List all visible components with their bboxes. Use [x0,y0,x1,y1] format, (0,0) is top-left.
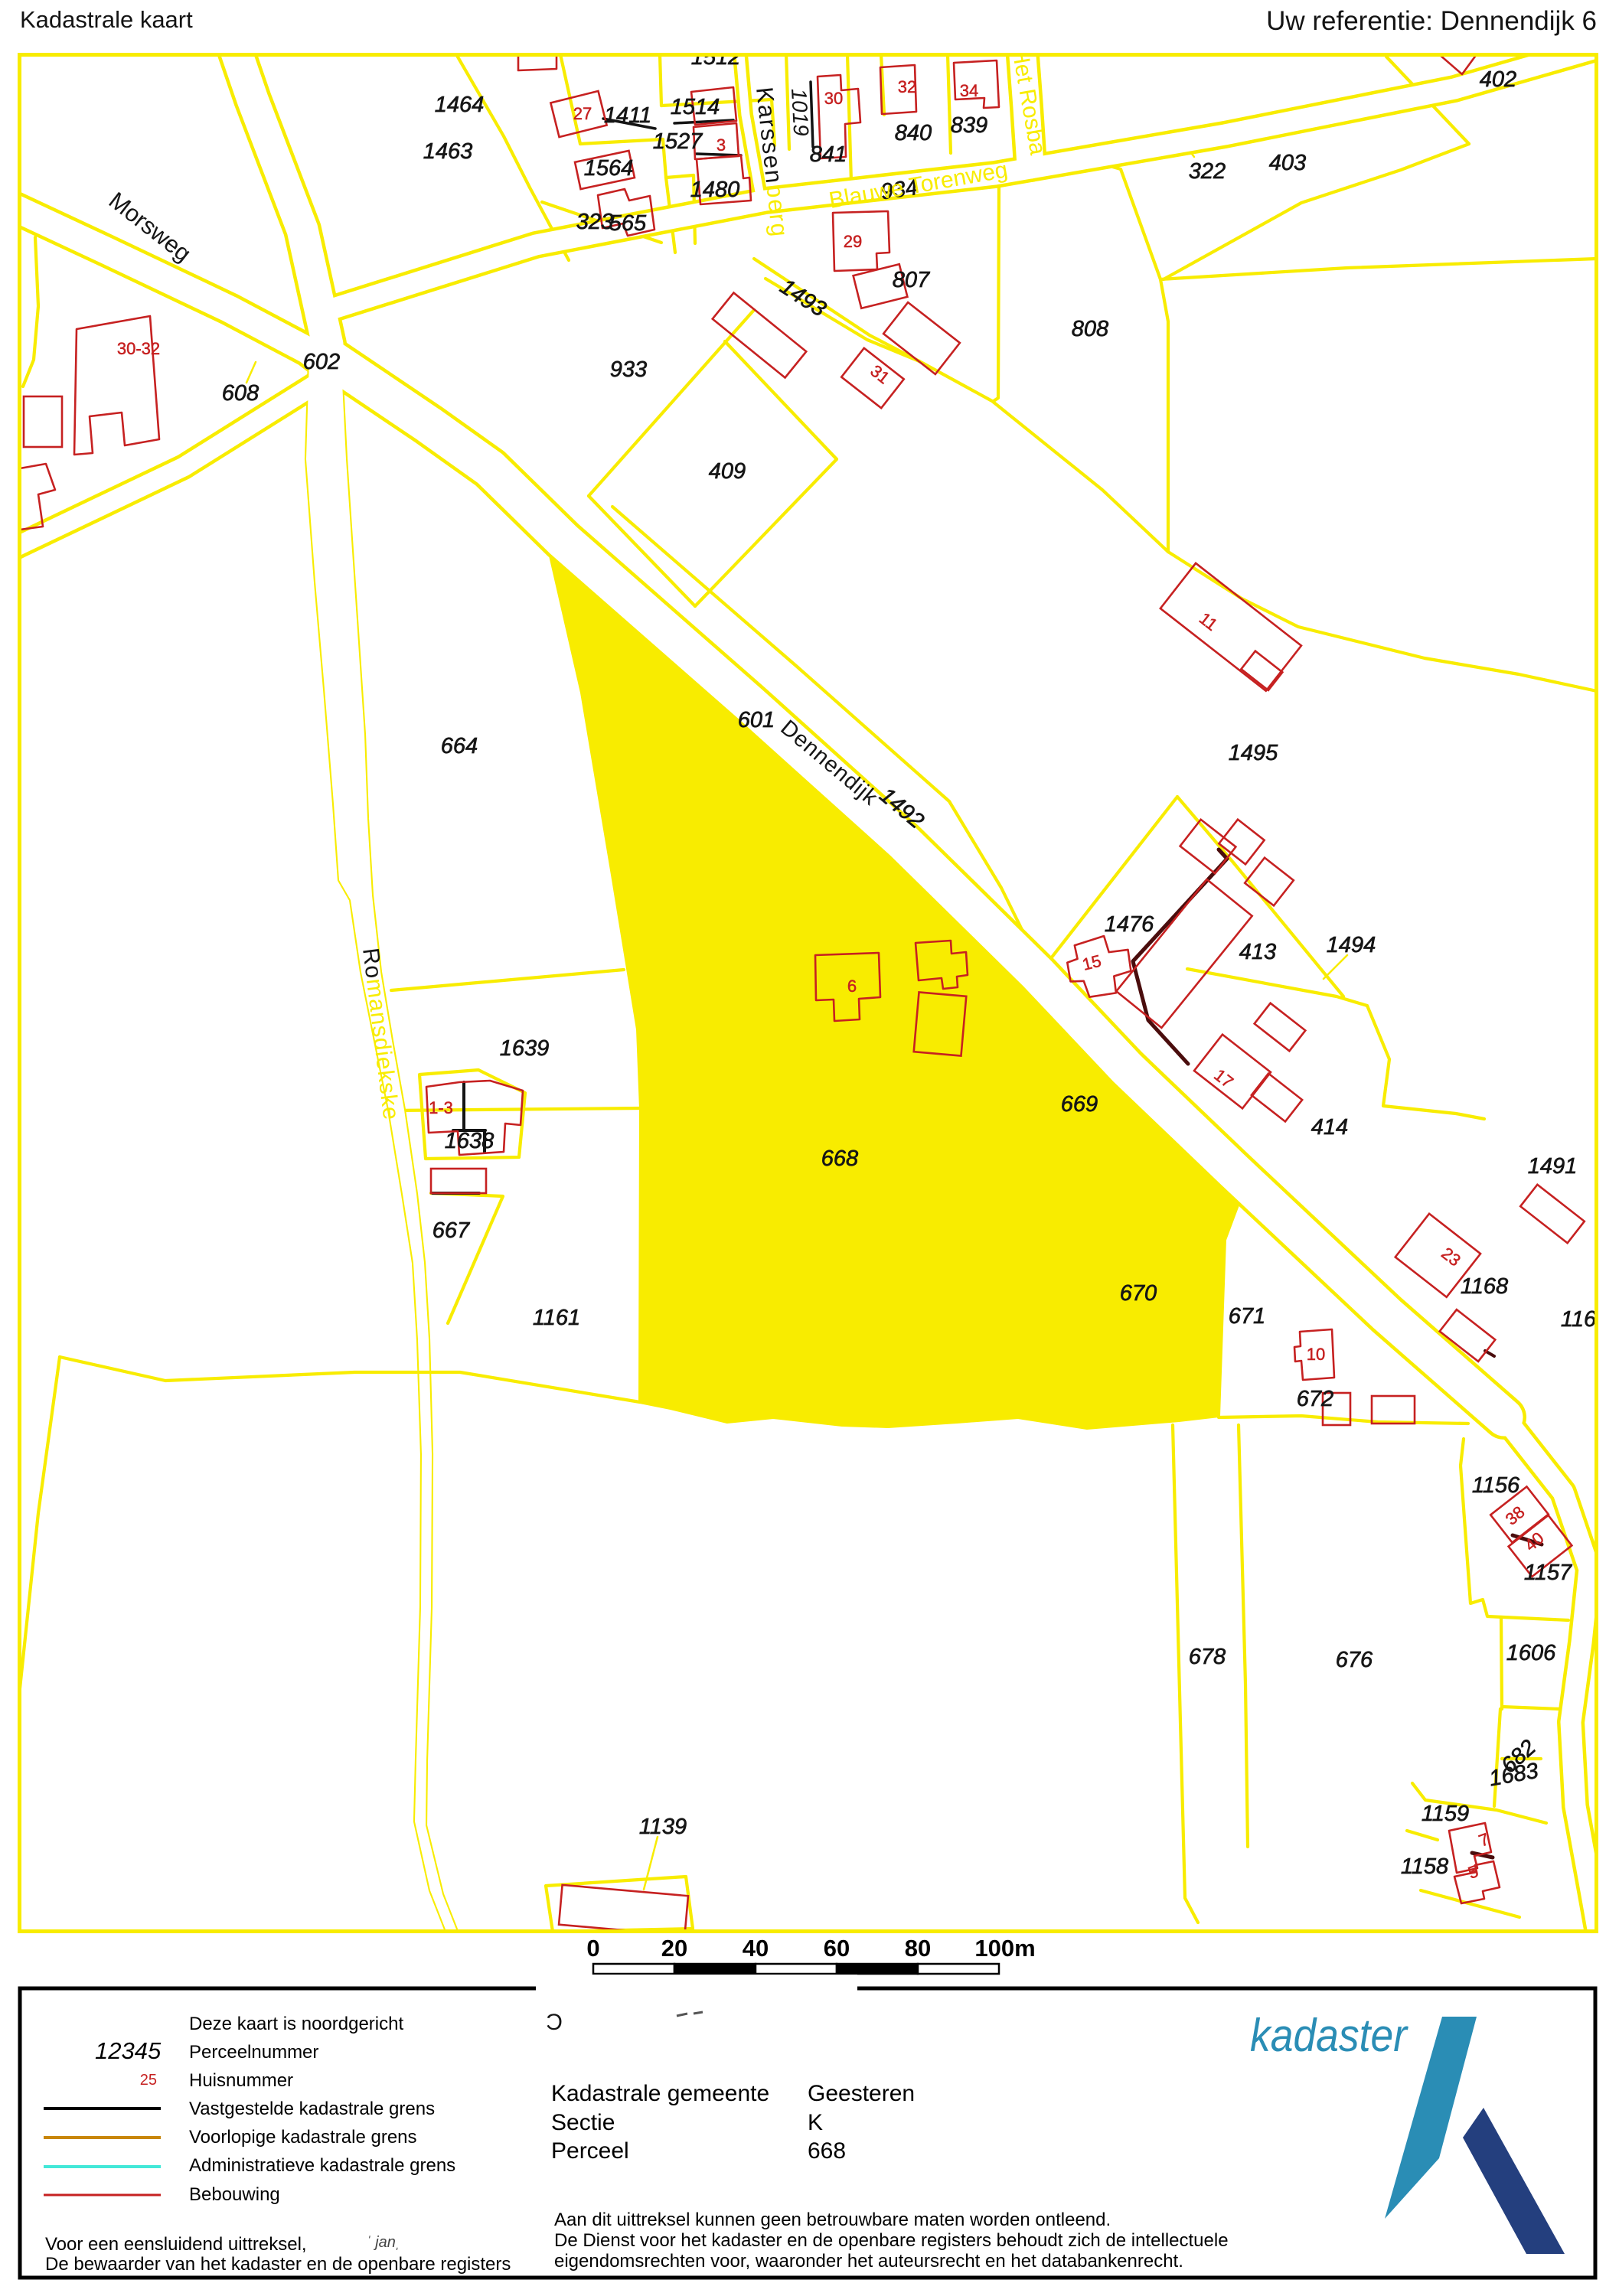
svg-text:1157: 1157 [1524,1561,1573,1585]
svg-text:839: 839 [951,113,987,138]
svg-text:933: 933 [610,357,647,382]
svg-text:841: 841 [810,142,847,167]
svg-text:34: 34 [960,81,978,100]
svg-text:32: 32 [898,77,916,96]
svg-text:668: 668 [821,1146,858,1171]
svg-text:12345: 12345 [95,2037,162,2064]
svg-text:eigendomsrechten voor, waarond: eigendomsrechten voor, waaronder het aut… [554,2251,1183,2272]
svg-text:602: 602 [303,350,340,374]
svg-text:1564: 1564 [584,156,634,181]
svg-text:1476: 1476 [1105,912,1154,937]
svg-text:0: 0 [586,1935,599,1962]
svg-text:1161: 1161 [533,1306,580,1330]
svg-text:Perceelnummer: Perceelnummer [189,2042,318,2063]
svg-text:840: 840 [895,121,932,145]
svg-text:Aan dit uittreksel kunnen geen: Aan dit uittreksel kunnen geen betrouwba… [554,2210,1111,2230]
svg-text:608: 608 [222,381,259,406]
svg-text:409: 409 [709,459,746,484]
svg-text:60: 60 [824,1935,850,1962]
svg-text:K: K [808,2110,823,2135]
svg-text:1156: 1156 [1472,1473,1520,1498]
svg-text:1158: 1158 [1401,1854,1448,1879]
svg-text:27: 27 [573,104,592,123]
svg-text:672: 672 [1297,1387,1333,1411]
svg-text:1514: 1514 [671,95,720,119]
svg-text:1638: 1638 [445,1129,495,1153]
svg-text:40: 40 [743,1935,769,1962]
svg-text:Voor een eensluidend uittrekse: Voor een eensluidend uittreksel, [45,2234,307,2255]
svg-text:1491: 1491 [1528,1154,1578,1179]
svg-text:Administratieve kadastrale gre: Administratieve kadastrale grens [189,2155,455,2176]
svg-text:1606: 1606 [1506,1641,1556,1665]
svg-text:1019: 1019 [787,88,813,137]
svg-text:1139: 1139 [639,1815,687,1839]
svg-text:1159: 1159 [1422,1802,1469,1826]
svg-text:678: 678 [1189,1645,1226,1669]
svg-text:1-3: 1-3 [429,1098,453,1117]
svg-text:601: 601 [738,708,775,732]
svg-text:403: 403 [1269,151,1306,175]
svg-text:323: 323 [576,210,613,234]
svg-text:100m: 100m [974,1935,1035,1962]
svg-text:3: 3 [716,135,726,155]
svg-text:669: 669 [1061,1092,1098,1117]
svg-text:Kadastrale gemeente: Kadastrale gemeente [551,2081,769,2106]
svg-text:1168: 1168 [1461,1274,1508,1299]
svg-text:Voorlopige kadastrale grens: Voorlopige kadastrale grens [189,2127,417,2148]
svg-text:413: 413 [1239,940,1276,964]
svg-text:667: 667 [432,1218,471,1243]
svg-text:25: 25 [140,2072,157,2089]
svg-text:Sectie: Sectie [551,2110,615,2135]
svg-text:Huisnummer: Huisnummer [189,2070,293,2091]
svg-text:1464: 1464 [435,93,485,117]
svg-text:671: 671 [1229,1304,1265,1329]
svg-text:Perceel: Perceel [551,2138,629,2164]
svg-text:414: 414 [1311,1115,1348,1140]
svg-text:De Dienst voor het kadaster en: De Dienst voor het kadaster en de openba… [554,2230,1229,2251]
svg-text:kadaster: kadaster [1250,2010,1408,2061]
svg-text:1527: 1527 [653,129,703,154]
svg-text:402: 402 [1480,67,1516,92]
svg-text:116: 116 [1561,1307,1597,1332]
svg-text:30-32: 30-32 [117,339,160,358]
svg-text:1411: 1411 [604,103,651,128]
svg-text:80: 80 [905,1935,931,1962]
svg-text:1639: 1639 [500,1036,550,1061]
svg-text:Bebouwing: Bebouwing [189,2184,280,2205]
svg-text:30: 30 [824,89,843,108]
svg-text:6: 6 [847,977,857,996]
svg-text:Vastgestelde kadastrale grens: Vastgestelde kadastrale grens [189,2099,435,2119]
svg-text:565: 565 [609,211,647,236]
svg-text:20: 20 [661,1935,687,1962]
svg-text:670: 670 [1120,1281,1157,1306]
svg-text:676: 676 [1336,1648,1373,1672]
svg-text:Deze kaart is noordgericht: Deze kaart is noordgericht [189,2014,403,2034]
svg-text:1494: 1494 [1327,933,1376,957]
svg-text:807: 807 [893,268,931,292]
svg-text:Kadastrale kaart: Kadastrale kaart [20,6,193,33]
svg-text:ˈ janˌ: ˈ janˌ [366,2234,401,2251]
svg-text:322: 322 [1189,159,1226,184]
svg-text:1495: 1495 [1229,741,1278,765]
svg-text:664: 664 [441,734,478,758]
svg-text:1480: 1480 [690,178,740,202]
svg-text:10: 10 [1307,1345,1325,1364]
svg-text:29: 29 [844,232,862,251]
svg-text:668: 668 [808,2138,846,2164]
svg-text:Uw referentie: Dennendijk 6: Uw referentie: Dennendijk 6 [1266,6,1597,36]
svg-text:Geesteren: Geesteren [808,2081,915,2106]
svg-text:De bewaarder van het kadaster: De bewaarder van het kadaster en de open… [45,2254,511,2275]
svg-text:C: C [546,2010,563,2035]
svg-text:1463: 1463 [423,139,473,164]
svg-text:808: 808 [1072,317,1108,341]
